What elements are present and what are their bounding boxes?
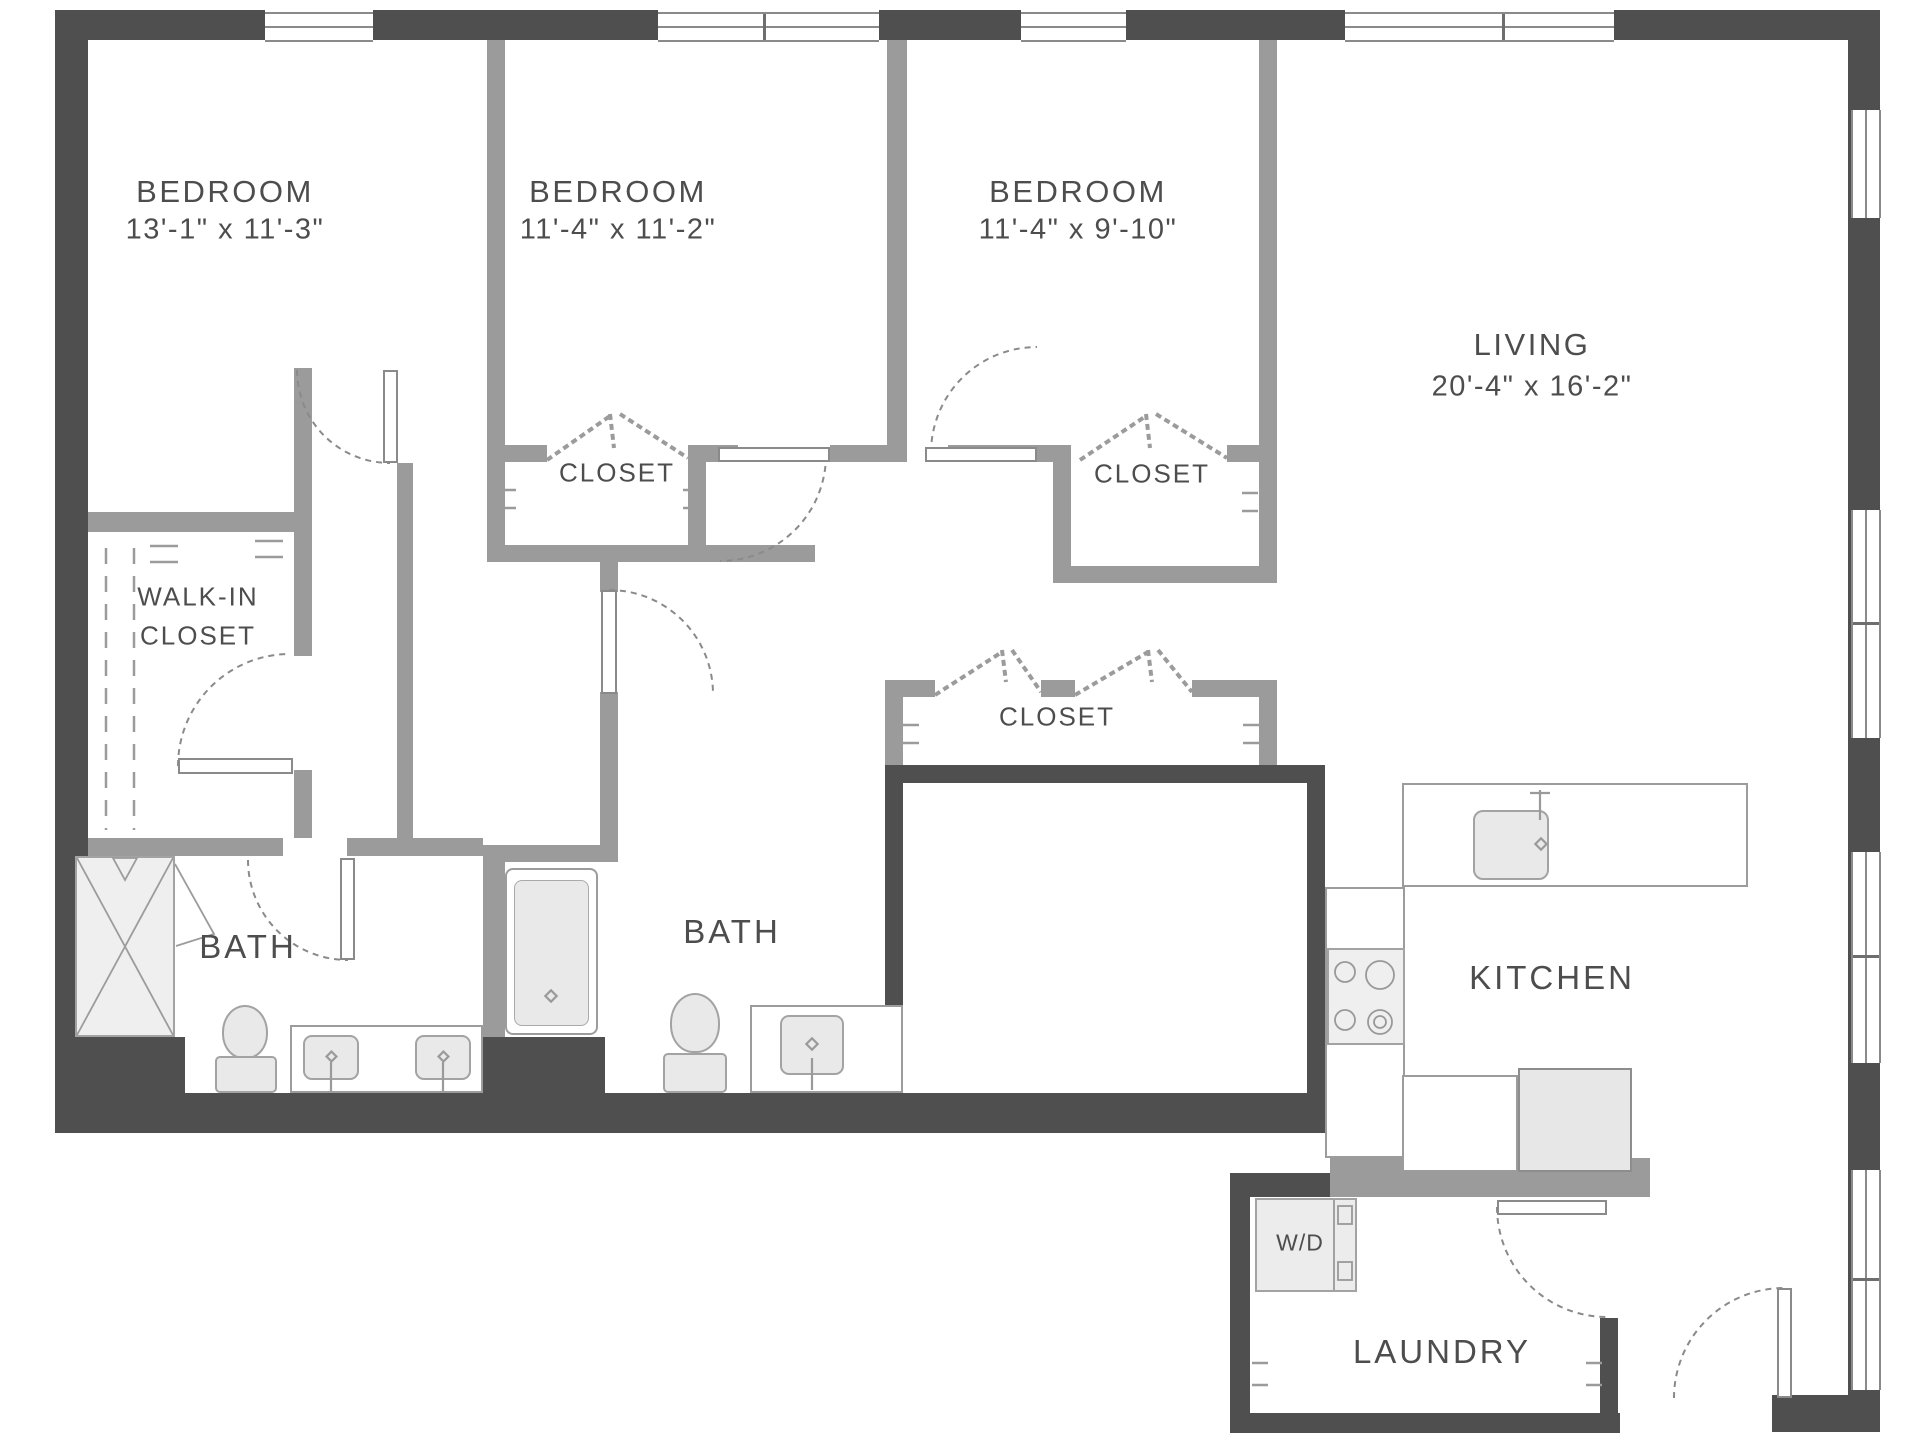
wall-entry-corner — [1772, 1395, 1880, 1432]
wall-laundry-door-stub — [1600, 1318, 1618, 1413]
bathtub-basin — [514, 880, 589, 1026]
room-label-walkin-closet-1: WALK-IN — [137, 582, 258, 613]
room-label-closet-hall: CLOSET — [999, 702, 1115, 733]
wall-bottom-under-shower — [55, 1037, 185, 1133]
wall-hallcloset-post — [1041, 680, 1075, 697]
wall-bed3-closet-stub-right — [1227, 445, 1259, 462]
bath2-door-arc — [609, 590, 713, 694]
wall-laundry-notch — [1230, 1173, 1330, 1197]
room-dims-bedroom-2: 11'-4" x 11'-2" — [520, 214, 717, 247]
floor-plan: BEDROOM 13'-1" x 11'-3" BEDROOM 11'-4" x… — [0, 0, 1920, 1447]
wall-tub-top — [483, 845, 618, 862]
wall-shaft-top — [885, 765, 1325, 783]
window-top-1 — [265, 12, 373, 42]
laundry-door-arc — [1497, 1207, 1607, 1317]
wall-bath2-left-upper — [600, 562, 618, 592]
entry-door — [1777, 1288, 1792, 1398]
room-label-bedroom-3: BEDROOM — [989, 174, 1167, 210]
kitchen-sink — [1473, 810, 1549, 880]
wall-shaft-bottom — [885, 1093, 1325, 1133]
wall-tub-left — [483, 862, 505, 1037]
bath1-door — [340, 858, 355, 960]
room-label-bedroom-2: BEDROOM — [529, 174, 707, 210]
window-top-3 — [1021, 12, 1126, 42]
wall-bath1-top-left — [88, 838, 283, 856]
hall-closet-bifold-left — [935, 650, 1041, 695]
room-label-laundry: LAUNDRY — [1353, 1333, 1531, 1371]
walkin-closet-door-arc — [178, 654, 290, 766]
bed3-closet-ticks — [1055, 493, 1258, 511]
wic-ticks — [150, 541, 283, 562]
wall-hallcloset-stub-left — [885, 680, 935, 697]
bed2-closet-ticks — [500, 490, 699, 508]
wall-bottom-bath1 — [185, 1093, 605, 1133]
room-dims-living: 20'-4" x 16'-2" — [1432, 371, 1633, 404]
label-washer-dryer: W/D — [1276, 1230, 1324, 1257]
window-right-2 — [1851, 510, 1881, 738]
wall-shaft-right — [1307, 765, 1325, 1133]
kitchen-lower-counter — [1402, 1075, 1518, 1172]
toilet2-bowl — [670, 993, 720, 1053]
cooktop — [1327, 948, 1405, 1045]
room-label-walkin-closet-2: CLOSET — [140, 621, 256, 652]
wall-exterior-top-5 — [1614, 10, 1880, 40]
wall-exterior-top-4 — [1126, 10, 1345, 40]
wall-laundry-left — [1230, 1197, 1250, 1433]
bedroom3-door — [925, 447, 1037, 462]
bedroom3-door-arc — [931, 347, 1037, 453]
wall-bottom-bath2 — [605, 1093, 905, 1133]
window-top-2 — [658, 12, 879, 42]
toilet1-bowl — [222, 1005, 268, 1059]
shower — [75, 856, 175, 1037]
wall-exterior-top-2 — [373, 10, 658, 40]
window-top-4 — [1345, 12, 1614, 42]
wall-bed3-closet-bottom — [1053, 566, 1277, 583]
bed3-closet-bifold — [1080, 414, 1227, 460]
wall-bed1-bed2-divider — [487, 40, 505, 562]
walkin-closet-door — [178, 758, 293, 774]
wall-bed3-closet-left — [1053, 445, 1071, 583]
wall-wic-top — [88, 512, 312, 532]
wall-bath1-top-right — [347, 838, 483, 856]
room-label-bath-1: BATH — [199, 928, 297, 966]
bedroom1-door — [383, 370, 398, 463]
room-label-bedroom-1: BEDROOM — [136, 174, 314, 210]
window-right-4 — [1851, 1170, 1881, 1390]
wall-under-tub — [483, 1037, 605, 1093]
room-label-living: LIVING — [1474, 327, 1591, 363]
wall-bed3-right — [1259, 40, 1277, 583]
bed2-closet-bifold — [547, 414, 688, 460]
kitchen-peninsula-counter — [1402, 783, 1748, 887]
bath2-door — [601, 590, 617, 694]
laundry-door — [1497, 1200, 1607, 1215]
room-label-kitchen: KITCHEN — [1469, 959, 1635, 997]
fridge — [1518, 1068, 1632, 1172]
room-label-bath-2: BATH — [683, 913, 781, 951]
room-label-closet-bedroom2: CLOSET — [559, 458, 675, 489]
wall-exterior-top-3 — [879, 10, 1021, 40]
wall-hallcloset-right — [1259, 680, 1277, 765]
toilet2-tank — [663, 1053, 727, 1093]
room-dims-bedroom-3: 11'-4" x 9'-10" — [979, 214, 1178, 247]
bath2-sink — [780, 1015, 844, 1075]
window-right-1 — [1851, 110, 1881, 218]
bath1-sink-right — [415, 1035, 471, 1080]
wall-hall — [397, 463, 413, 838]
hall-closet-bifold-right — [1075, 650, 1192, 695]
wall-bath2-left-lower — [600, 692, 618, 845]
window-right-3 — [1851, 852, 1881, 1063]
bedroom2-door — [718, 447, 830, 462]
room-dims-bedroom-1: 13'-1" x 11'-3" — [126, 214, 325, 247]
bath1-sink-left — [303, 1035, 359, 1080]
wall-bed2-closet-bottom — [487, 545, 815, 562]
wall-bed2-south-right — [830, 445, 887, 462]
toilet1-tank — [215, 1056, 277, 1093]
wall-wic-hinge-stub — [294, 770, 312, 838]
wall-bed2-bed3-divider — [887, 40, 907, 462]
room-label-closet-bedroom3: CLOSET — [1094, 459, 1210, 490]
wall-laundry-bottom — [1230, 1413, 1620, 1433]
wall-bed2-closet-stub-left — [505, 445, 547, 462]
entry-door-arc — [1674, 1288, 1784, 1398]
